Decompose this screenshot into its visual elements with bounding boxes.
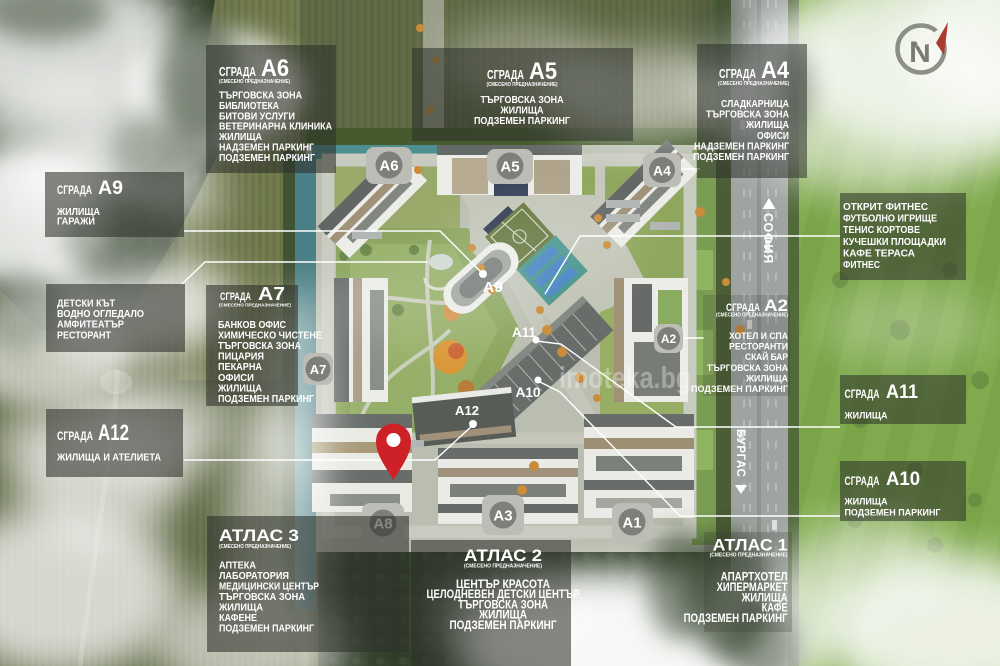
svg-text:КАФЕ ТЕРАСА: КАФЕ ТЕРАСА <box>843 248 915 259</box>
svg-text:ЖИЛИЩА: ЖИЛИЩА <box>745 120 789 131</box>
svg-text:БАНКОВ ОФИС: БАНКОВ ОФИС <box>218 320 286 331</box>
svg-text:СГРАДА: СГРАДА <box>57 429 93 443</box>
svg-text:ТЪРГОВСКА ЗОНА: ТЪРГОВСКА ЗОНА <box>706 110 789 121</box>
svg-text:ГАРАЖИ: ГАРАЖИ <box>57 217 95 228</box>
svg-text:(СМЕСЕНО ПРЕДНАЗНАЧЕНИЕ): (СМЕСЕНО ПРЕДНАЗНАЧЕНИЕ) <box>718 81 789 87</box>
svg-text:АТЛАС 1: АТЛАС 1 <box>713 535 788 554</box>
svg-text:РЕСТОРАНТ: РЕСТОРАНТ <box>57 330 111 341</box>
svg-text:ЖИЛИЩА: ЖИЛИЩА <box>500 105 544 116</box>
svg-text:ПОДЗЕМЕН ПАРКИНГ: ПОДЗЕМЕН ПАРКИНГ <box>691 384 789 395</box>
svg-text:АТЛАС 3: АТЛАС 3 <box>219 526 299 545</box>
svg-text:ТЪРГОВСКА ЗОНА: ТЪРГОВСКА ЗОНА <box>481 95 564 106</box>
svg-text:ПИЦАРИЯ: ПИЦАРИЯ <box>218 352 264 363</box>
svg-text:А4: А4 <box>653 162 671 178</box>
svg-text:А4: А4 <box>761 57 790 84</box>
svg-text:СОФИЯ: СОФИЯ <box>761 213 775 264</box>
svg-text:АТЛАС 2: АТЛАС 2 <box>464 546 542 565</box>
svg-text:ЖИЛИЩА: ЖИЛИЩА <box>218 132 262 143</box>
svg-text:СГРАДА: СГРАДА <box>845 387 880 401</box>
svg-text:А5: А5 <box>529 58 557 85</box>
svg-text:СГРАДА: СГРАДА <box>845 474 880 488</box>
svg-text:СГРАДА: СГРАДА <box>219 64 256 79</box>
svg-text:А11: А11 <box>886 382 918 403</box>
svg-text:СГРАДА: СГРАДА <box>487 67 524 82</box>
svg-text:А9: А9 <box>98 178 123 199</box>
svg-text:ПОДЗЕМЕН ПАРКИНГ: ПОДЗЕМЕН ПАРКИНГ <box>474 116 570 127</box>
svg-text:(СМЕСЕНО ПРЕДНАЗНАЧЕНИЕ): (СМЕСЕНО ПРЕДНАЗНАЧЕНИЕ) <box>219 303 291 308</box>
svg-text:РЕСТОРАНТИ: РЕСТОРАНТИ <box>729 342 788 353</box>
svg-text:СКАЙ БАР: СКАЙ БАР <box>745 351 789 363</box>
svg-text:А12: А12 <box>455 403 479 418</box>
svg-text:ОТКРИТ ФИТНЕС: ОТКРИТ ФИТНЕС <box>843 202 928 213</box>
svg-text:ПЕКАРНА: ПЕКАРНА <box>218 362 262 373</box>
svg-text:ОФИСИ: ОФИСИ <box>218 373 254 384</box>
svg-text:(СМЕСЕНО ПРЕДНАЗНАЧЕНИЕ): (СМЕСЕНО ПРЕДНАЗНАЧЕНИЕ) <box>464 564 542 570</box>
svg-text:ТЪРГОВСКА ЗОНА: ТЪРГОВСКА ЗОНА <box>218 341 301 352</box>
svg-text:НАДЗЕМЕН ПАРКИНГ: НАДЗЕМЕН ПАРКИНГ <box>219 143 314 154</box>
svg-text:А3: А3 <box>493 508 512 525</box>
svg-text:НАДЗЕМЕН ПАРКИНГ: НАДЗЕМЕН ПАРКИНГ <box>694 141 789 152</box>
svg-text:БУРГАС: БУРГАС <box>734 429 746 478</box>
svg-text:(СМЕСЕНО ПРЕДНАЗНАЧЕНИЕ): (СМЕСЕНО ПРЕДНАЗНАЧЕНИЕ) <box>219 544 291 550</box>
svg-text:А7: А7 <box>258 284 285 304</box>
svg-text:АМФИТЕАТЪР: АМФИТЕАТЪР <box>57 320 124 331</box>
svg-text:А6: А6 <box>379 158 398 175</box>
svg-text:ФИТНЕС: ФИТНЕС <box>843 260 880 271</box>
svg-text:ПОДЗЕМЕН ПАРКИНГ: ПОДЗЕМЕН ПАРКИНГ <box>218 394 314 405</box>
svg-text:А10: А10 <box>886 469 920 490</box>
svg-text:(СМЕСЕНО ПРЕДНАЗНАЧЕНИЕ): (СМЕСЕНО ПРЕДНАЗНАЧЕНИЕ) <box>716 313 788 319</box>
svg-text:ПОДЗЕМЕН ПАРКИНГ: ПОДЗЕМЕН ПАРКИНГ <box>684 613 788 625</box>
svg-text:СГРАДА: СГРАДА <box>719 66 756 81</box>
svg-text:ТЕНИС КОРТОВЕ: ТЕНИС КОРТОВЕ <box>843 225 920 236</box>
svg-text:ТЪРГОВСКА ЗОНА: ТЪРГОВСКА ЗОНА <box>219 91 302 102</box>
svg-text:ПОДЗЕМЕН ПАРКИНГ: ПОДЗЕМЕН ПАРКИНГ <box>219 153 315 164</box>
svg-text:А9: А9 <box>483 279 503 296</box>
svg-text:ХОТЕЛ И СПА: ХОТЕЛ И СПА <box>729 331 788 342</box>
svg-text:А11: А11 <box>512 324 536 340</box>
svg-text:ЖИЛИЩА: ЖИЛИЩА <box>217 383 262 394</box>
svg-text:СГРАДА: СГРАДА <box>57 183 92 197</box>
svg-text:ХИМИЧЕСКО ЧИСТЕНЕ: ХИМИЧЕСКО ЧИСТЕНЕ <box>218 330 322 341</box>
svg-text:ВЕТЕРИНАРНА КЛИНИКА: ВЕТЕРИНАРНА КЛИНИКА <box>219 122 332 133</box>
svg-text:А6: А6 <box>261 55 289 82</box>
svg-text:ПОДЗЕМЕН ПАРКИНГ: ПОДЗЕМЕН ПАРКИНГ <box>693 152 789 163</box>
svg-text:А5: А5 <box>500 159 519 176</box>
svg-text:ЖИЛИЩА: ЖИЛИЩА <box>844 497 888 508</box>
svg-text:А10: А10 <box>516 384 541 400</box>
svg-text:СЛАДКАРНИЦА: СЛАДКАРНИЦА <box>721 99 789 110</box>
svg-text:ФУТБОЛНО ИГРИЩЕ: ФУТБОЛНО ИГРИЩЕ <box>843 214 937 225</box>
svg-text:А7: А7 <box>310 362 327 377</box>
svg-text:(СМЕСЕНО ПРЕДНАЗНАЧЕНИЕ): (СМЕСЕНО ПРЕДНАЗНАЧЕНИЕ) <box>710 553 788 559</box>
svg-text:КУЧЕШКИ ПЛОЩАДКИ: КУЧЕШКИ ПЛОЩАДКИ <box>843 237 946 248</box>
svg-text:ОФИСИ: ОФИСИ <box>757 131 789 142</box>
svg-text:А12: А12 <box>98 420 129 445</box>
svg-text:ЖИЛИЩА: ЖИЛИЩА <box>844 411 888 422</box>
svg-text:А2: А2 <box>661 332 677 346</box>
svg-text:А1: А1 <box>622 515 641 532</box>
svg-text:ЖИЛИЩА И АТЕЛИЕТА: ЖИЛИЩА И АТЕЛИЕТА <box>56 453 161 464</box>
svg-text:БИТОВИ УСЛУГИ: БИТОВИ УСЛУГИ <box>219 111 295 122</box>
svg-text:(СМЕСЕНО ПРЕДНАЗНАЧЕНИЕ): (СМЕСЕНО ПРЕДНАЗНАЧЕНИЕ) <box>219 79 290 85</box>
svg-text:ЖИЛИЩА: ЖИЛИЩА <box>745 373 788 384</box>
svg-text:ТЪРГОВСКА ЗОНА: ТЪРГОВСКА ЗОНА <box>707 363 788 374</box>
svg-text:ПОДЗЕМЕН ПАРКИНГ: ПОДЗЕМЕН ПАРКИНГ <box>845 508 942 519</box>
svg-text:ПОДЗЕМЕН ПАРКИНГ: ПОДЗЕМЕН ПАРКИНГ <box>219 623 314 635</box>
svg-text:(СМЕСЕНО ПРЕДНАЗНАЧЕНИЕ): (СМЕСЕНО ПРЕДНАЗНАЧЕНИЕ) <box>487 82 558 88</box>
svg-text:БИБЛИОТЕКА: БИБЛИОТЕКА <box>219 101 279 112</box>
svg-text:ПОДЗЕМЕН ПАРКИНГ: ПОДЗЕМЕН ПАРКИНГ <box>450 620 557 632</box>
svg-text:СГРАДА: СГРАДА <box>220 291 251 303</box>
svg-text:ДЕТСКИ КЪТ: ДЕТСКИ КЪТ <box>57 299 115 310</box>
svg-text:ВОДНО ОГЛЕДАЛО: ВОДНО ОГЛЕДАЛО <box>57 309 144 320</box>
